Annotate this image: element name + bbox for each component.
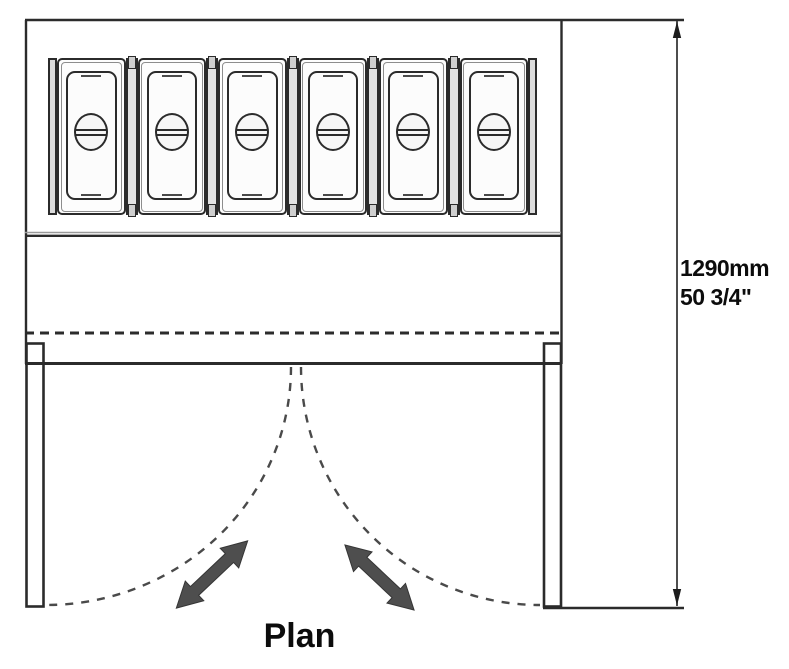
food-pan-6 xyxy=(460,58,529,215)
dimension-label: 1290mm 50 3/4" xyxy=(680,254,788,312)
open-doors xyxy=(27,344,562,607)
door-swing-arcs xyxy=(46,367,540,605)
pan-assembly xyxy=(48,58,537,215)
swing-arrow-left-icon xyxy=(167,531,257,618)
door-swing-arc-left xyxy=(46,367,291,605)
pan-separator-bar-1 xyxy=(126,58,138,215)
dimension-arrow-up-icon xyxy=(673,22,681,39)
pan-lid-knob xyxy=(155,113,189,151)
swing-arrow-right-icon xyxy=(336,535,424,620)
pan-lid-knob xyxy=(316,113,350,151)
plan-diagram: 1290mm 50 3/4" Plan xyxy=(0,0,789,669)
pan-lid-knob xyxy=(396,113,430,151)
pan-lid xyxy=(469,71,520,200)
pan-lid xyxy=(308,71,359,200)
food-pan-1 xyxy=(57,58,126,215)
dimension xyxy=(543,21,684,608)
door-swing-arc-right xyxy=(301,367,540,605)
dimension-arrow-down-icon xyxy=(673,589,681,606)
pan-lid xyxy=(388,71,439,200)
pan-lid-knob xyxy=(477,113,511,151)
pan-lid-knob xyxy=(235,113,269,151)
pan-rail-end-left xyxy=(48,58,57,215)
pan-lid xyxy=(147,71,198,200)
pan-rail-end-right xyxy=(528,58,537,215)
pan-lid xyxy=(66,71,117,200)
pan-separator-bar-5 xyxy=(448,58,460,215)
plan-caption: Plan xyxy=(242,617,357,655)
door-left xyxy=(27,344,44,607)
food-pan-2 xyxy=(138,58,207,215)
pan-separator-bar-4 xyxy=(367,58,379,215)
door-right xyxy=(544,344,561,607)
food-pan-5 xyxy=(379,58,448,215)
food-pan-3 xyxy=(218,58,287,215)
pan-lid xyxy=(227,71,278,200)
swing-direction-arrows xyxy=(167,531,423,620)
dimension-imperial-text: 50 3/4" xyxy=(680,283,788,312)
pan-lid-knob xyxy=(74,113,108,151)
pan-separator-bar-3 xyxy=(287,58,299,215)
pan-separator-bar-2 xyxy=(206,58,218,215)
dimension-metric-text: 1290mm xyxy=(680,254,788,283)
food-pan-4 xyxy=(299,58,368,215)
